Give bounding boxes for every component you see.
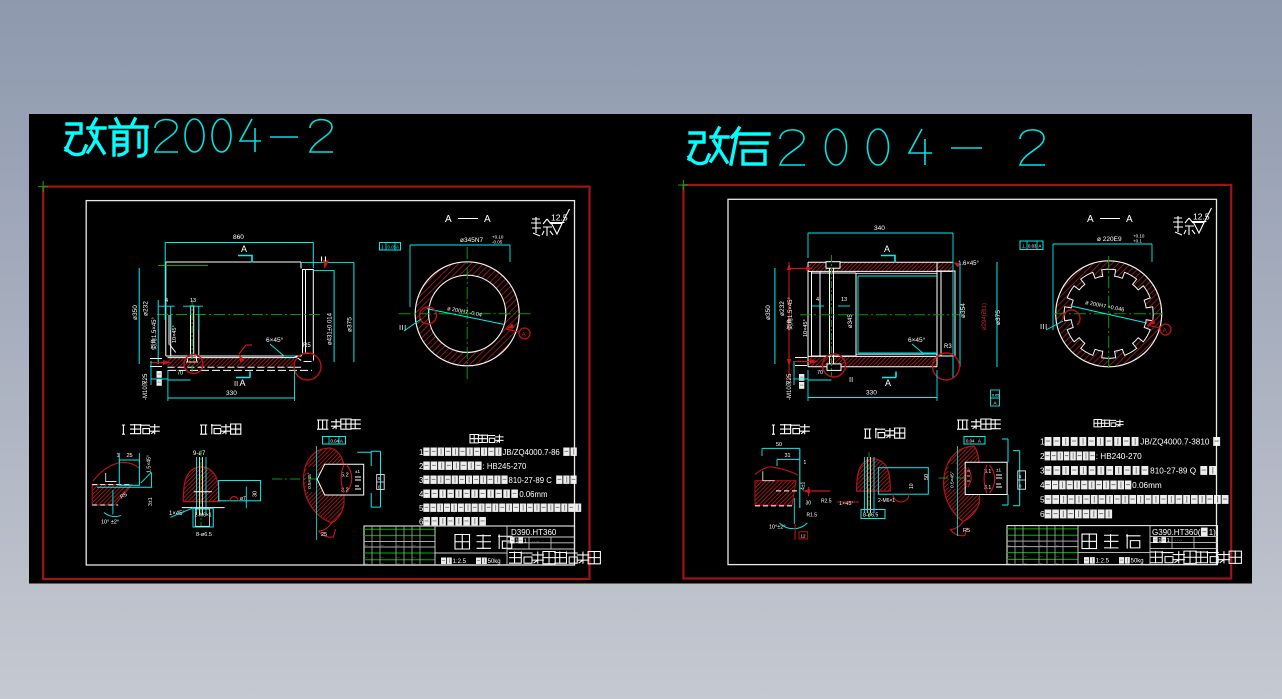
svg-text:R5: R5: [303, 343, 311, 349]
svg-text:··: ··: [1040, 560, 1043, 565]
svg-text:倒角1.5×45°: 倒角1.5×45°: [786, 296, 794, 330]
svg-text:1: 1: [1158, 538, 1161, 544]
svg-text:ø354: ø354: [960, 303, 967, 318]
svg-text:5: 5: [1040, 496, 1045, 505]
svg-text:25: 25: [127, 453, 133, 459]
svg-text:倒角1.5×45°: 倒角1.5×45°: [150, 316, 158, 350]
svg-text:12: 12: [801, 534, 807, 539]
svg-text:··: ··: [1040, 543, 1043, 548]
svg-text:R3: R3: [944, 344, 952, 350]
svg-text:ø350: ø350: [132, 305, 139, 320]
svg-text:ø7: ø7: [240, 496, 246, 502]
svg-text:±1: ±1: [355, 469, 361, 474]
svg-text:1.6×45°: 1.6×45°: [958, 261, 980, 267]
svg-text:4: 4: [419, 490, 424, 499]
svg-text:A: A: [994, 401, 997, 406]
svg-text:II: II: [849, 375, 853, 384]
svg-text:31: 31: [785, 453, 791, 459]
svg-text:II: II: [234, 379, 238, 388]
svg-text:ø232: ø232: [143, 301, 150, 316]
svg-text:R1.5: R1.5: [807, 513, 818, 519]
svg-text:340: 340: [874, 225, 885, 232]
svg-text:860: 860: [233, 234, 244, 241]
svg-text:0.05: 0.05: [992, 394, 999, 398]
svg-text:A: A: [978, 439, 981, 444]
svg-text:50kg: 50kg: [1131, 559, 1144, 565]
svg-text:A: A: [484, 214, 491, 225]
svg-text:ø375: ø375: [347, 317, 354, 332]
svg-text:1:2.5: 1:2.5: [1096, 559, 1110, 565]
svg-text:··: ··: [381, 561, 384, 566]
svg-text:70: 70: [817, 370, 823, 376]
svg-text:JB/ZQ4000.7-3810: JB/ZQ4000.7-3810: [1140, 438, 1210, 447]
svg-text:··: ··: [1024, 560, 1027, 565]
svg-text:⊥: ⊥: [1022, 244, 1026, 250]
svg-text:··: ··: [1024, 554, 1027, 559]
svg-text:A: A: [1087, 214, 1094, 225]
svg-text:ø431±0.014: ø431±0.014: [328, 312, 334, 345]
svg-text:ø375: ø375: [995, 310, 1002, 325]
svg-text:0.04: 0.04: [966, 439, 975, 444]
svg-text:··: ··: [397, 543, 400, 548]
svg-text:: HB240-270: : HB240-270: [1096, 452, 1142, 461]
svg-text:2: 2: [1040, 452, 1045, 461]
svg-text:2-M6×1: 2-M6×1: [878, 498, 895, 504]
svg-text:··: ··: [1056, 543, 1059, 548]
svg-text:0.04: 0.04: [331, 439, 340, 444]
svg-text:13: 13: [841, 297, 847, 303]
svg-text:-0.05: -0.05: [492, 240, 503, 245]
svg-text:··: ··: [381, 555, 384, 560]
svg-text:G390.HT360(: G390.HT360(: [1152, 528, 1201, 537]
svg-text:··: ··: [1008, 554, 1011, 559]
svg-text:30: 30: [806, 501, 812, 507]
svg-text:810-27-89 Q: 810-27-89 Q: [1150, 467, 1196, 476]
svg-text:··: ··: [413, 561, 416, 566]
svg-text:4: 4: [816, 297, 819, 303]
svg-text:·· ··: ·· ··: [532, 539, 539, 544]
svg-text:8-ø6.5: 8-ø6.5: [863, 513, 878, 519]
svg-text:1: 1: [117, 453, 120, 459]
svg-text:A: A: [445, 214, 452, 225]
svg-text:0.06mm: 0.06mm: [519, 490, 547, 499]
svg-text:··: ··: [365, 555, 368, 560]
svg-text:··: ··: [1040, 554, 1043, 559]
svg-text:2: 2: [419, 462, 423, 471]
svg-text:1: 1: [419, 448, 423, 457]
svg-text:70: 70: [177, 371, 183, 377]
svg-text:1: 1: [1167, 538, 1170, 544]
svg-text:-M10深25: -M10深25: [141, 373, 149, 400]
svg-text:A: A: [240, 378, 246, 388]
svg-text:··: ··: [1056, 560, 1059, 565]
svg-text:50: 50: [776, 442, 782, 448]
svg-text:1): 1): [1209, 528, 1216, 537]
svg-text:9-ø7: 9-ø7: [193, 451, 206, 457]
svg-text:··: ··: [397, 561, 400, 566]
svg-text:6×45°: 6×45°: [266, 336, 284, 344]
svg-text:1: 1: [515, 539, 518, 545]
svg-text:±1: ±1: [996, 468, 1002, 473]
svg-text:··: ··: [397, 555, 400, 560]
svg-text:10: 10: [909, 483, 915, 489]
svg-text:ø350: ø350: [765, 305, 772, 320]
svg-text:6×45°: 6×45°: [908, 336, 926, 344]
svg-text:··: ··: [1024, 543, 1027, 548]
svg-text:··: ··: [1008, 543, 1011, 548]
svg-text:810-27-89 C: 810-27-89 C: [509, 476, 553, 485]
svg-text:4±1: 4±1: [801, 481, 807, 490]
svg-text:··: ··: [381, 543, 384, 548]
svg-text:··: ··: [1008, 560, 1011, 565]
svg-text:3: 3: [1040, 467, 1045, 476]
svg-text:D390.HT360: D390.HT360: [511, 528, 557, 537]
svg-text:4: 4: [165, 298, 168, 304]
svg-text:A: A: [1039, 244, 1042, 249]
svg-text:0.5×45°: 0.5×45°: [950, 471, 956, 488]
svg-text:A: A: [1126, 214, 1133, 225]
svg-text:3: 3: [419, 476, 423, 485]
svg-text:·· ··: ·· ··: [1175, 538, 1182, 543]
svg-text:R2.5: R2.5: [821, 499, 832, 505]
svg-text:1: 1: [1040, 438, 1045, 447]
svg-text:ø232: ø232: [779, 301, 786, 316]
svg-text:A: A: [241, 244, 247, 254]
svg-text:4: 4: [1040, 481, 1045, 490]
svg-text:6: 6: [419, 517, 423, 526]
svg-text:A: A: [396, 245, 399, 250]
svg-text:1: 1: [804, 460, 807, 466]
svg-text:13: 13: [190, 298, 196, 304]
svg-text:50: 50: [924, 474, 930, 480]
svg-text:R5: R5: [963, 528, 970, 534]
svg-text:A: A: [522, 332, 527, 339]
svg-text:1: 1: [524, 539, 527, 545]
svg-text:-M10深25: -M10深25: [785, 373, 793, 400]
svg-text:A: A: [340, 439, 343, 444]
svg-text:III: III: [399, 323, 407, 332]
svg-text:ø345N7: ø345N7: [460, 237, 484, 244]
svg-text:A: A: [1163, 328, 1168, 335]
svg-text:ø294(改1): ø294(改1): [980, 303, 988, 330]
svg-text:1.5×45°: 1.5×45°: [147, 455, 153, 473]
svg-text:8-ø6.5: 8-ø6.5: [196, 532, 212, 538]
svg-text:··: ··: [365, 543, 368, 548]
svg-text:A: A: [885, 378, 891, 388]
svg-text:A: A: [884, 244, 890, 254]
svg-text:330: 330: [226, 390, 237, 397]
svg-text:5.2: 5.2: [341, 473, 349, 479]
svg-text:0.03: 0.03: [1028, 244, 1037, 249]
svg-text:0.5×45°: 0.5×45°: [307, 472, 313, 489]
svg-text:30: 30: [253, 491, 259, 497]
svg-text:50kg: 50kg: [488, 559, 501, 565]
svg-text:330: 330: [866, 390, 877, 397]
svg-text:··: ··: [413, 555, 416, 560]
svg-text:: HB245-270: : HB245-270: [483, 462, 527, 471]
svg-text:25: 25: [321, 532, 327, 538]
svg-text:JB/ZQ4000.7-86: JB/ZQ4000.7-86: [503, 448, 560, 457]
svg-text:6: 6: [1040, 510, 1045, 519]
svg-text:3±1: 3±1: [148, 497, 154, 506]
svg-text:10×45°: 10×45°: [172, 325, 178, 343]
svg-text:1:2.5: 1:2.5: [453, 559, 467, 565]
svg-text:10° ±2°: 10° ±2°: [101, 520, 119, 526]
svg-text:··: ··: [413, 543, 416, 548]
svg-text:··: ··: [1056, 554, 1059, 559]
svg-text:··: ··: [365, 561, 368, 566]
svg-text:10×45°: 10×45°: [803, 319, 809, 337]
svg-text:+0.1: +0.1: [1133, 239, 1142, 244]
svg-text:ø 220E9: ø 220E9: [1097, 236, 1122, 243]
svg-text:5: 5: [419, 504, 424, 513]
svg-text:┃: ┃: [381, 245, 383, 250]
svg-text:0.06mm: 0.06mm: [1132, 481, 1162, 490]
svg-text:ø345: ø345: [848, 314, 854, 328]
